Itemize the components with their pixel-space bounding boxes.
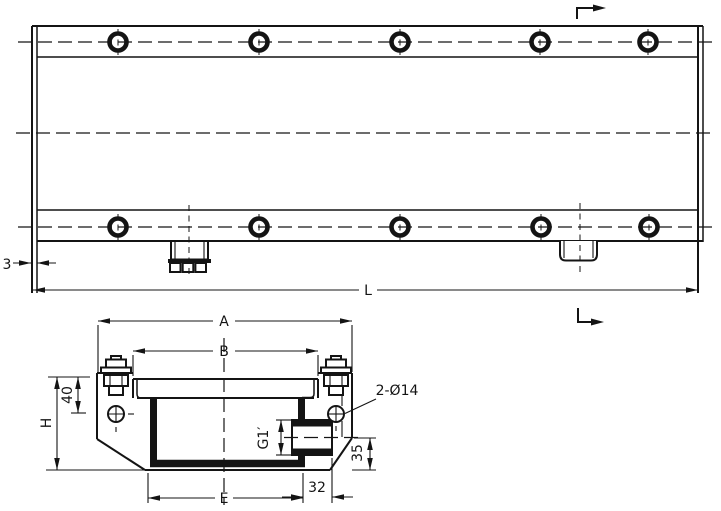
- dim-label-L: L: [364, 283, 372, 299]
- mounting-hole-left: [107, 405, 134, 432]
- dimension-A: A: [98, 314, 352, 372]
- dim-label-35: 35: [350, 444, 366, 462]
- dim-label-B: B: [219, 344, 229, 360]
- section-cut-marker-bottom: [578, 308, 604, 326]
- dimension-B: B: [133, 344, 318, 376]
- engineering-drawing-sheet: 3 L: [0, 0, 721, 511]
- callout-label-2-d14: 2-Ø14: [376, 383, 419, 399]
- tank-tub-section: [150, 398, 305, 467]
- dimension-thickness: 3: [3, 257, 56, 273]
- cap-fitting: [560, 203, 597, 275]
- dim-label-A: A: [219, 314, 229, 330]
- section-view: 2-Ø14 A B H 40: [39, 314, 418, 507]
- dim-label-E: E: [220, 491, 229, 507]
- bolt-right: [321, 356, 351, 395]
- bolt-left: [101, 356, 131, 395]
- flange-plate: [133, 379, 318, 398]
- section-cut-marker-top: [577, 5, 606, 20]
- dim-label-3: 3: [3, 257, 12, 273]
- dimension-H: H: [39, 377, 145, 470]
- dim-label-40: 40: [60, 386, 76, 404]
- pipe-port-fitting: [284, 420, 360, 455]
- section-arrow-icon: [593, 5, 606, 12]
- plan-view: 3 L: [3, 26, 716, 299]
- drain-plug-hex: [168, 205, 211, 278]
- callout-holes: 2-Ø14: [345, 383, 418, 414]
- dimension-E: E: [148, 473, 303, 507]
- dim-label-G1: G1′: [256, 427, 272, 450]
- dimension-35: 35: [350, 438, 376, 470]
- dimension-length: L: [33, 283, 698, 299]
- dim-label-32: 32: [308, 480, 326, 496]
- section-arrow-icon: [591, 319, 604, 326]
- technical-drawing: 3 L: [0, 0, 721, 511]
- dim-label-H: H: [39, 418, 55, 429]
- dimension-40: 40: [60, 377, 86, 413]
